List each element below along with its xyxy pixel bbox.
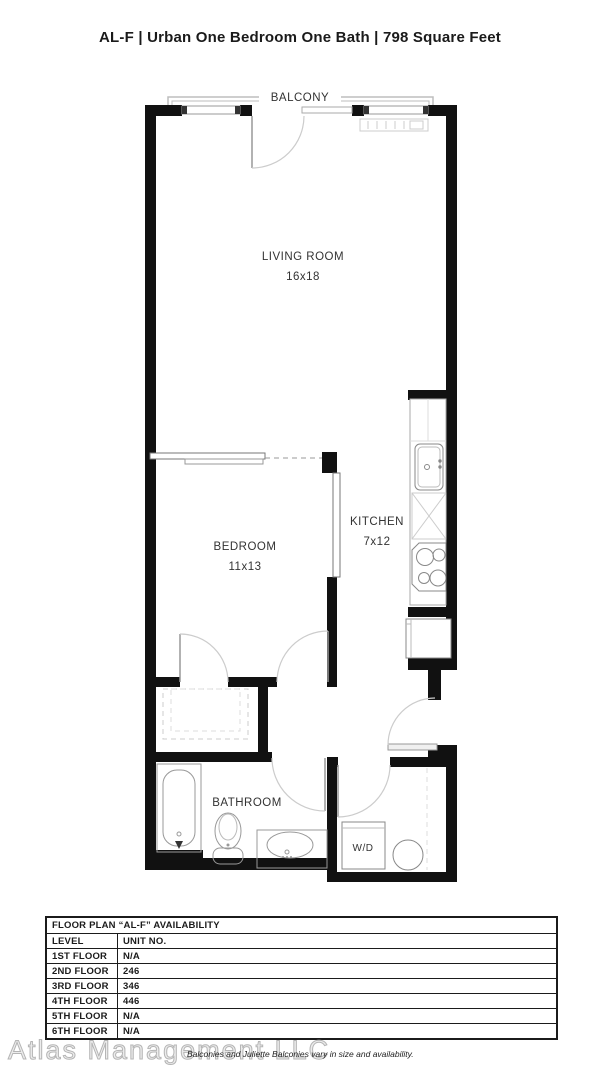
closet-shelf — [163, 689, 248, 739]
fridge-icon — [406, 619, 451, 658]
kitchen-fixtures — [406, 399, 451, 658]
level-cell: 2ND FLOOR — [47, 964, 118, 978]
unit-cell: 246 — [118, 964, 556, 978]
table-row: 3RD FLOOR 346 — [47, 978, 556, 993]
table-row: 4TH FLOOR 446 — [47, 993, 556, 1008]
kitchen-dimensions: 7x12 — [364, 536, 391, 548]
disclaimer: Balconies and Juliette Balconies vary in… — [187, 1049, 414, 1059]
level-cell: 3RD FLOOR — [47, 979, 118, 993]
level-cell: 1ST FLOOR — [47, 949, 118, 963]
living-room-dimensions: 16x18 — [286, 271, 320, 283]
kitchen-label: KITCHEN — [350, 516, 404, 528]
entry-door — [388, 698, 437, 750]
table-row: 5TH FLOOR N/A — [47, 1008, 556, 1023]
window-icon — [182, 106, 240, 114]
closet-door — [180, 634, 228, 682]
unit-cell: 446 — [118, 994, 556, 1008]
toilet-icon — [213, 813, 243, 864]
water-heater-icon — [393, 840, 423, 870]
level-cell: 5TH FLOOR — [47, 1009, 118, 1023]
balcony-door — [252, 116, 304, 168]
windows — [182, 106, 428, 131]
window-icon — [364, 106, 428, 114]
availability-table: FLOOR PLAN “AL-F” AVAILABILITY LEVEL UNI… — [45, 916, 558, 1040]
availability-table-header-row: LEVEL UNIT NO. — [47, 933, 556, 948]
room-labels: BALCONY LIVING ROOM 16x18 BEDROOM 11x13 … — [212, 89, 404, 854]
bathtub-icon — [157, 764, 201, 852]
unit-cell: N/A — [118, 1009, 556, 1023]
column-header-unit-no: UNIT NO. — [118, 934, 556, 948]
balcony-fixed-panel — [302, 107, 352, 113]
heater-icon — [360, 119, 428, 131]
bedroom-door — [277, 631, 328, 682]
washer-dryer-label: W/D — [353, 843, 374, 854]
laundry-fixtures — [342, 768, 427, 870]
floor-plan-page: AL-F | Urban One Bedroom One Bath | 798 … — [0, 0, 600, 1080]
laundry-closet-door — [338, 765, 390, 817]
table-row: 2ND FLOOR 246 — [47, 963, 556, 978]
door-swings — [150, 116, 437, 817]
availability-table-title-row: FLOOR PLAN “AL-F” AVAILABILITY — [47, 918, 556, 933]
bathroom-label: BATHROOM — [212, 797, 282, 809]
living-room-label: LIVING ROOM — [262, 251, 344, 263]
availability-table-title: FLOOR PLAN “AL-F” AVAILABILITY — [47, 918, 556, 933]
stove-icon — [412, 543, 446, 591]
bedroom-sliding-door — [150, 453, 340, 577]
unit-cell: N/A — [118, 949, 556, 963]
balcony-label: BALCONY — [271, 92, 329, 104]
bedroom-dimensions: 11x13 — [229, 561, 262, 573]
table-row: 1ST FLOOR N/A — [47, 948, 556, 963]
level-cell: 4TH FLOOR — [47, 994, 118, 1008]
unit-cell: 346 — [118, 979, 556, 993]
bathroom-fixtures — [157, 764, 327, 868]
sink-icon — [415, 444, 443, 490]
column-header-level: LEVEL — [47, 934, 118, 948]
bedroom-label: BEDROOM — [214, 541, 277, 553]
